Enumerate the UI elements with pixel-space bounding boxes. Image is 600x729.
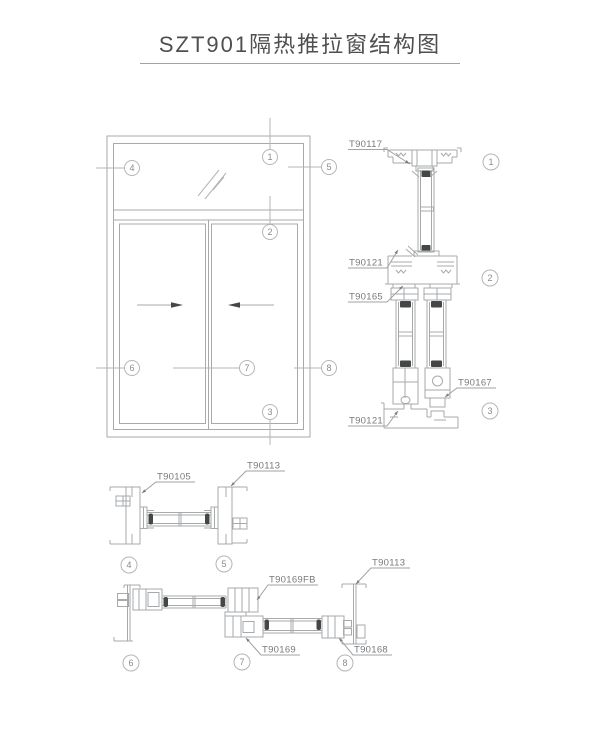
svg-text:6: 6	[129, 363, 134, 373]
balloon-3: 3	[263, 405, 278, 420]
label-meeting-stile: T90169FB	[257, 575, 318, 601]
sash-end-profile	[322, 616, 344, 638]
right-sash-glass	[263, 619, 322, 634]
svg-text:5: 5	[326, 162, 331, 172]
fixed-jamb-left-profile	[110, 487, 147, 544]
svg-text:4: 4	[126, 560, 131, 570]
page-title: SZT901隔热推拉窗结构图	[159, 32, 441, 57]
svg-text:3: 3	[487, 406, 492, 416]
svg-text:T90169: T90169	[262, 645, 296, 656]
balloon-section-5: 5	[216, 556, 232, 572]
vertical-section: T90117 T90121 T90165 T90167 T90121 1 2 3	[348, 139, 499, 428]
svg-text:T90121: T90121	[349, 258, 383, 269]
left-sash-glass	[162, 596, 226, 608]
balloon-1: 1	[263, 150, 278, 165]
svg-text:7: 7	[239, 657, 244, 667]
fixed-jamb-right-profile	[211, 487, 247, 544]
balloon-section-3: 3	[482, 403, 498, 419]
drawing-canvas: SZT901隔热推拉窗结构图 1 2 3 4 5 6 7 8	[0, 0, 600, 729]
svg-text:T90169FB: T90169FB	[269, 575, 316, 586]
sill-track-profile	[381, 403, 458, 428]
fixed-glass-horizontal	[147, 511, 211, 529]
svg-text:8: 8	[326, 363, 331, 373]
svg-text:8: 8	[342, 658, 347, 668]
balloon-6: 6	[125, 361, 140, 376]
svg-text:T90168: T90168	[354, 645, 388, 656]
label-sill-track: T90121	[348, 411, 398, 427]
sash-glass-units	[396, 300, 446, 368]
balloon-section-2: 2	[482, 270, 498, 286]
svg-text:2: 2	[267, 227, 272, 237]
sash-interlock-profile	[225, 616, 263, 637]
window-elevation: 1 2 3 4 5 6 7 8	[96, 118, 337, 445]
label-slide-jamb-right: T90113	[356, 558, 410, 585]
slide-jamb-right-profile	[342, 584, 366, 644]
balloon-4: 4	[125, 161, 140, 176]
balloon-section-7: 7	[234, 654, 250, 670]
left-sash-end-profile	[133, 589, 162, 610]
svg-text:4: 4	[129, 163, 134, 173]
svg-text:T90117: T90117	[349, 139, 382, 150]
label-head-frame: T90117	[348, 139, 410, 164]
label-sash-interlock: T90169	[246, 638, 300, 656]
horizontal-section-fixed: T90105 T90113 4 5	[110, 461, 285, 574]
svg-text:T90113: T90113	[247, 461, 280, 472]
sash-bottom-profiles	[393, 368, 450, 407]
slide-arrow-left-sash	[137, 302, 183, 308]
svg-text:3: 3	[267, 407, 272, 417]
balloon-2: 2	[263, 225, 278, 240]
label-sash-bottom-right: T90167	[445, 378, 496, 398]
balloon-8: 8	[322, 361, 337, 376]
svg-text:1: 1	[488, 157, 493, 167]
balloon-section-6: 6	[123, 655, 139, 671]
slide-jamb-left-profile	[114, 585, 140, 641]
balloon-7: 7	[240, 361, 255, 376]
svg-text:T90165: T90165	[349, 292, 383, 303]
sash-top-profiles	[391, 288, 451, 300]
svg-text:5: 5	[221, 559, 226, 569]
fixed-glass-unit	[406, 168, 434, 257]
title-block: SZT901隔热推拉窗结构图	[140, 32, 460, 64]
svg-text:1: 1	[267, 152, 272, 162]
frame-outline	[107, 136, 310, 437]
balloon-5: 5	[322, 160, 337, 175]
balloon-section-4: 4	[121, 557, 137, 573]
svg-text:T90113: T90113	[372, 558, 405, 569]
glass-hatch-marks	[198, 170, 226, 199]
slide-arrow-right-sash	[228, 302, 274, 308]
svg-text:T90167: T90167	[458, 378, 492, 389]
svg-text:T90105: T90105	[157, 472, 191, 483]
label-fixed-jamb-left: T90105	[142, 472, 195, 494]
transom-profile	[385, 251, 460, 288]
horizontal-section-sliding: T90169FB T90113 T90169 T90168 6 7 8	[114, 558, 410, 672]
svg-text:2: 2	[487, 273, 492, 283]
label-fixed-jamb-right: T90113	[231, 461, 285, 487]
balloon-section-8: 8	[337, 655, 353, 671]
svg-text:T90121: T90121	[349, 416, 383, 427]
svg-text:6: 6	[128, 658, 133, 668]
label-transom: T90121	[348, 250, 398, 269]
meeting-stile-profile	[225, 588, 258, 616]
balloon-section-1: 1	[483, 154, 499, 170]
svg-text:7: 7	[244, 363, 249, 373]
